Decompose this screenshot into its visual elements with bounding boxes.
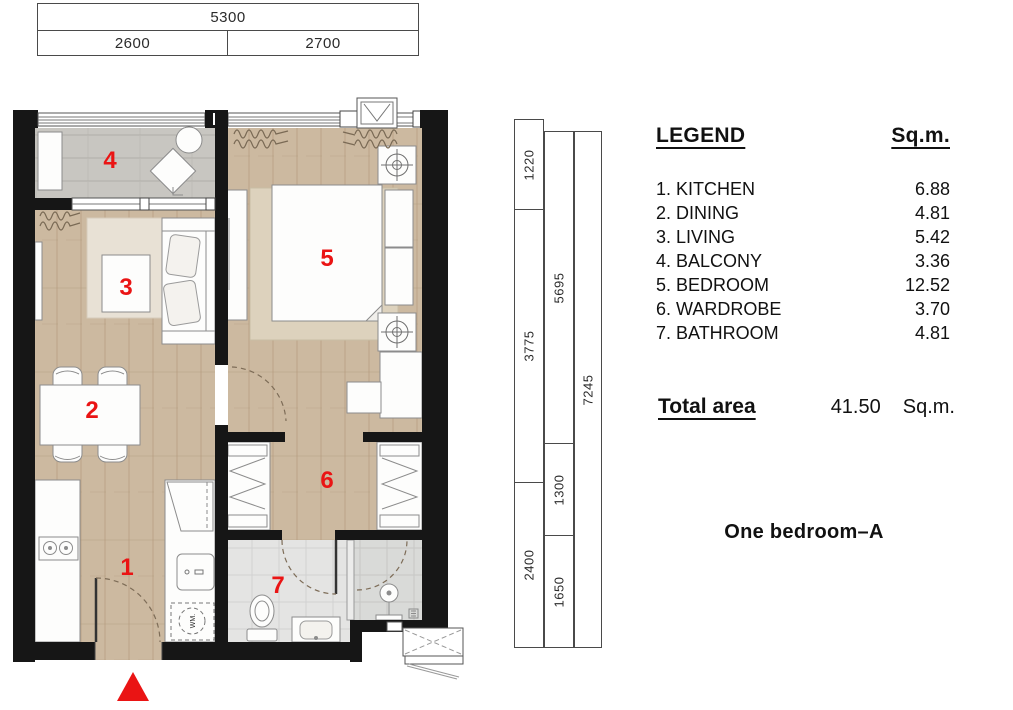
ac-box: [403, 628, 463, 656]
dim-segment: 1650: [545, 535, 573, 647]
legend-row-dining: 2. DINING4.81: [656, 201, 950, 225]
dimension-value: 2600: [115, 35, 150, 52]
wall-step-connector: [350, 620, 362, 662]
stove-burner-dot: [48, 546, 52, 550]
dimension-overall-width: 5300: [38, 4, 418, 30]
legend-label: 7. BATHROOM: [656, 323, 779, 344]
legend-row-wardrobe: 6. WARDROBE3.70: [656, 297, 950, 321]
kitchen-counter-left: [35, 480, 80, 642]
legend-row-balcony: 4. BALCONY3.36: [656, 249, 950, 273]
dim-segment: 2400: [515, 482, 543, 647]
room-number-kitchen: 1: [120, 554, 133, 581]
headboard-drawer: [385, 248, 413, 305]
legend-row-bathroom: 7. BATHROOM4.81: [656, 321, 950, 345]
dimension-value: 7245: [581, 374, 596, 405]
room-number-bathroom: 7: [271, 572, 284, 599]
floor-plan-page: 5300 2600 2700 1220 3775 2400 5695 1300 …: [0, 0, 1013, 710]
legend-row-kitchen: 1. KITCHEN6.88: [656, 177, 950, 201]
wall-wardrobe-top-left: [228, 432, 285, 442]
wardrobe-left: [225, 442, 270, 530]
dimension-value: 2700: [305, 35, 340, 52]
legend-label: 1. KITCHEN: [656, 179, 755, 200]
dimension-value: 2400: [522, 550, 537, 581]
dimension-segment-left: 2600: [38, 31, 228, 55]
room-number-living: 3: [119, 274, 132, 301]
room-number-dining: 2: [85, 397, 98, 424]
legend-area: 4.81: [915, 203, 950, 224]
sofa-cushion: [163, 280, 201, 326]
vent-opening: [387, 622, 402, 631]
legend-label: 3. LIVING: [656, 227, 735, 248]
dim-column-middle: 5695 1300 1650: [544, 131, 574, 648]
room-number-wardrobe: 6: [320, 467, 333, 494]
legend-area: 4.81: [915, 323, 950, 344]
dimension-value: 3775: [522, 331, 537, 362]
balcony-table: [176, 127, 202, 153]
dim-column-inner: 1220 3775 2400: [514, 119, 544, 648]
dimension-value: 5300: [210, 9, 245, 26]
shower-partition: [347, 540, 354, 620]
dim-segment: 5695: [545, 132, 573, 443]
shower-handle: [376, 615, 402, 620]
toilet-tank: [247, 629, 277, 641]
window-post: [340, 111, 357, 127]
legend-area: 5.42: [915, 227, 950, 248]
legend-label: 6. WARDROBE: [656, 299, 781, 320]
dimension-value: 1650: [552, 576, 567, 607]
wall-bathroom-top-right: [335, 530, 422, 540]
washing-machine-label: WM.: [190, 614, 197, 628]
total-area-row: Total area 41.50 Sq.m.: [658, 395, 955, 419]
dim-segment: 1300: [545, 443, 573, 535]
entry-opening: [95, 642, 162, 660]
floor-plan-drawing: WM.: [10, 90, 470, 710]
headboard-drawer: [385, 190, 413, 247]
sofa-armrest-bottom: [162, 331, 215, 344]
ac-unit-top: [357, 98, 397, 128]
sofa-cushion: [165, 234, 200, 278]
plan-title: One bedroom–A: [658, 521, 950, 544]
ac-unit-bottom: [403, 628, 463, 679]
room-number-bedroom: 5: [320, 245, 333, 272]
sliding-door-post: [206, 198, 215, 210]
dim-column-outer: 7245: [574, 131, 602, 648]
wall-bathroom-top-left: [215, 530, 282, 540]
legend-unit-header: Sq.m.: [891, 124, 950, 148]
room-number-balcony: 4: [103, 147, 117, 174]
sofa-armrest-top: [162, 218, 215, 231]
dimension-value: 1300: [552, 474, 567, 505]
dim-segment: 3775: [515, 209, 543, 482]
wall-right: [422, 110, 448, 632]
vanity-faucet: [314, 636, 318, 640]
dressing-console: [380, 352, 422, 418]
entrance-arrow: [117, 672, 149, 701]
legend-items: 1. KITCHEN6.88 2. DINING4.81 3. LIVING5.…: [656, 177, 950, 345]
dim-segment: 7245: [575, 132, 601, 647]
legend-area: 12.52: [905, 275, 950, 296]
legend-area: 3.70: [915, 299, 950, 320]
toilet: [250, 595, 274, 627]
ac-base-bar: [405, 656, 463, 664]
wall-balcony-stub: [35, 198, 72, 210]
sliding-door-post: [140, 198, 149, 210]
wall-wardrobe-top-right: [363, 432, 422, 442]
wall-left: [13, 110, 35, 662]
wall-bottom-right: [162, 642, 362, 660]
wardrobe-right: [377, 442, 422, 530]
total-area-label: Total area: [658, 395, 756, 419]
stove-burner-dot: [64, 546, 68, 550]
top-dimension-table: 5300 2600 2700: [37, 3, 419, 56]
legend-label: 5. BEDROOM: [656, 275, 769, 296]
ac-louver-lines: [407, 664, 459, 679]
legend: LEGEND Sq.m. 1. KITCHEN6.88 2. DINING4.8…: [656, 124, 950, 345]
legend-label: 4. BALCONY: [656, 251, 762, 272]
wall-bottom-left: [13, 642, 95, 660]
dim-segment: 1220: [515, 120, 543, 209]
legend-row-living: 3. LIVING5.42: [656, 225, 950, 249]
dressing-stool: [347, 382, 381, 413]
balcony-bench: [38, 132, 62, 190]
legend-label: 2. DINING: [656, 203, 739, 224]
legend-area: 3.36: [915, 251, 950, 272]
dimension-value: 5695: [552, 272, 567, 303]
tv-console: [35, 242, 42, 320]
legend-row-bedroom: 5. BEDROOM12.52: [656, 273, 950, 297]
shower-head-center: [387, 591, 392, 596]
wall-corner-topleft: [13, 110, 38, 128]
wall-divider-upper: [215, 112, 228, 365]
legend-title: LEGEND: [656, 124, 745, 148]
total-area-value: 41.50: [831, 396, 881, 419]
legend-area: 6.88: [915, 179, 950, 200]
dimension-value: 1220: [522, 149, 537, 180]
total-area-unit: Sq.m.: [903, 396, 955, 419]
dimension-segment-right: 2700: [228, 31, 418, 55]
